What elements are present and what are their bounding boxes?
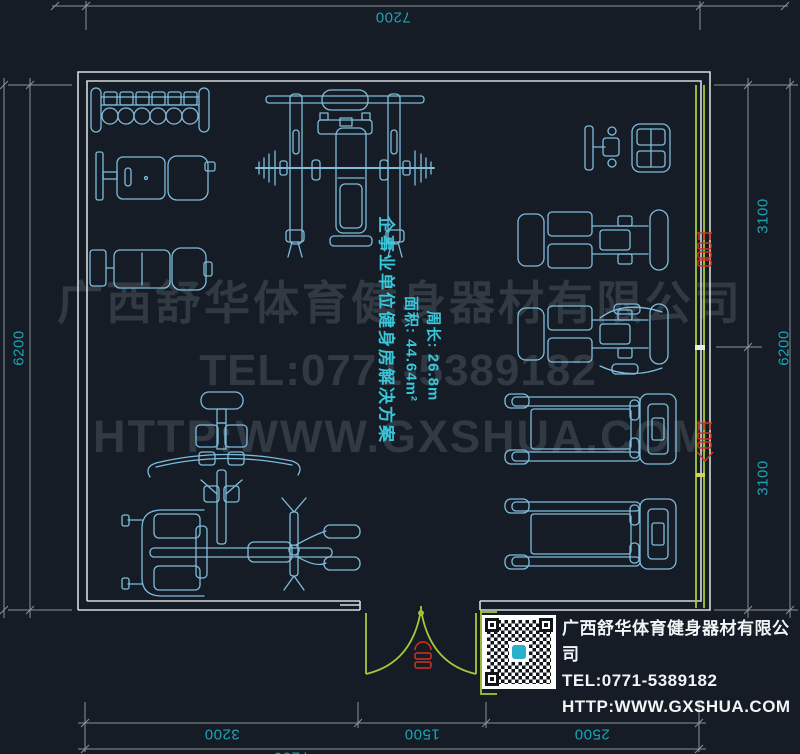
door-tag-icon bbox=[415, 642, 431, 668]
seated-strength-machine-2 bbox=[518, 304, 668, 374]
qr-finder-icon bbox=[485, 618, 499, 632]
bench-press-station bbox=[256, 90, 434, 257]
treadmill-1 bbox=[505, 394, 676, 464]
dim-left-total: 6200 bbox=[0, 330, 4, 365]
dumbbell-rack bbox=[91, 88, 209, 132]
qr-center-logo-icon bbox=[509, 642, 529, 662]
legend-tel: TEL:0771-5389182 bbox=[562, 668, 800, 694]
cad-viewport[interactable]: 广西舒华体育健身器材有限公司 TEL:0771-5389182 HTTP:WWW… bbox=[0, 0, 800, 754]
adjustable-bench bbox=[96, 152, 215, 200]
seated-strength-machine-1 bbox=[518, 210, 668, 270]
treadmill-2 bbox=[505, 499, 676, 569]
dim-right-total: 6200 bbox=[776, 330, 793, 365]
dim-right-lower: 3100 bbox=[755, 460, 772, 495]
window-tag-icon bbox=[697, 423, 713, 461]
dim-top: 7200 bbox=[375, 9, 410, 26]
dim-right-upper: 3100 bbox=[755, 198, 772, 233]
plan-area: 面积: 44.64m² bbox=[402, 296, 423, 402]
plan-title: 企事业单位健身房解决方案 bbox=[376, 216, 401, 444]
qr-code bbox=[485, 618, 553, 686]
dim-bottom-left: 3200 bbox=[204, 726, 239, 743]
multi-station-machine bbox=[122, 392, 360, 596]
dim-bottom-right: 2500 bbox=[574, 726, 609, 743]
company-legend: 广西舒华体育健身器材有限公司 TEL:0771-5389182 HTTP:WWW… bbox=[483, 611, 800, 706]
qr-finder-icon bbox=[485, 672, 499, 686]
dim-bottom-mid: 1500 bbox=[404, 726, 439, 743]
legend-url: HTTP:WWW.GXSHUA.COM bbox=[562, 694, 800, 720]
dim-left: 6200 bbox=[11, 330, 28, 365]
legend-company: 广西舒华体育健身器材有限公司 bbox=[562, 616, 800, 668]
dim-bottom-total: 7200 bbox=[273, 749, 308, 754]
plan-perimeter: 周长: 26.8m bbox=[424, 311, 445, 402]
flat-bench bbox=[90, 248, 212, 290]
qr-finder-icon bbox=[539, 618, 553, 632]
exercise-bike bbox=[585, 124, 670, 172]
